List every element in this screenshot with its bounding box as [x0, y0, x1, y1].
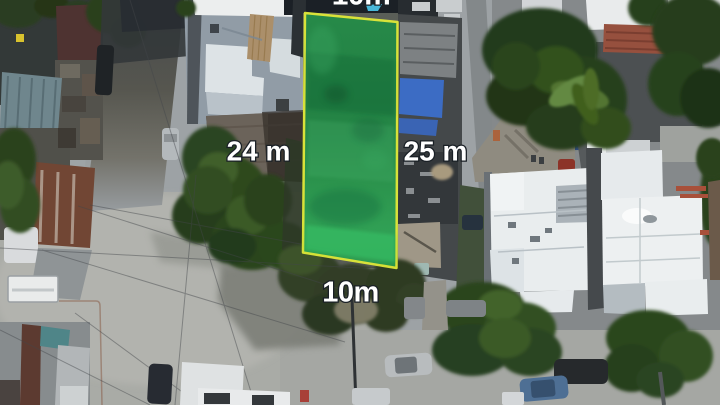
svg-text:10m: 10m: [332, 0, 391, 12]
svg-text:24 m: 24 m: [227, 136, 291, 167]
svg-text:25 m: 25 m: [404, 136, 468, 167]
svg-text:10m: 10m: [322, 277, 379, 309]
